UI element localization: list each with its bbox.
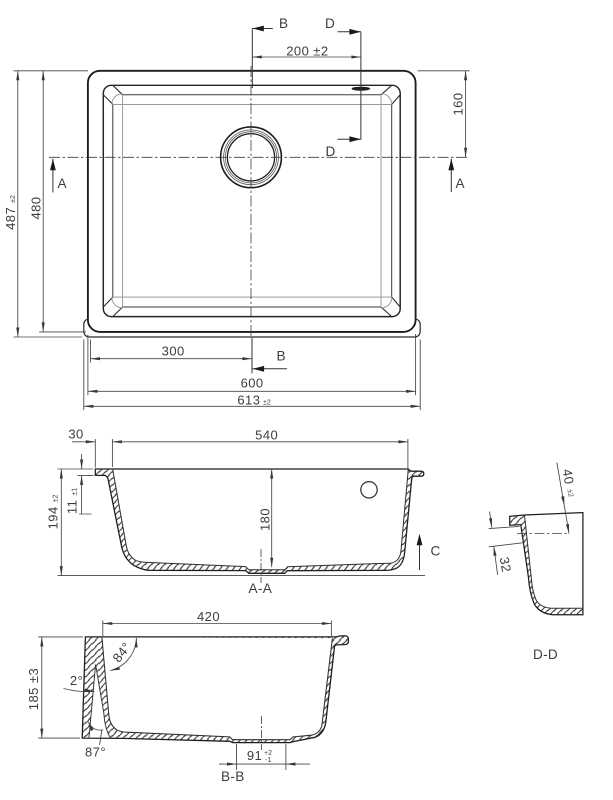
svg-text:A-A: A-A [249, 581, 273, 596]
svg-text:B: B [277, 349, 286, 364]
svg-text:600: 600 [241, 376, 264, 391]
svg-text:±2: ±2 [263, 399, 271, 406]
svg-text:540: 540 [255, 427, 278, 442]
svg-text:200 ±2: 200 ±2 [286, 43, 328, 58]
svg-text:+2: +2 [264, 750, 272, 757]
svg-text:A: A [456, 176, 466, 191]
svg-text:613: 613 [237, 392, 260, 407]
svg-text:480: 480 [29, 196, 44, 219]
svg-text:B: B [279, 16, 288, 31]
svg-text:2°: 2° [70, 673, 83, 688]
svg-text:194 ±2: 194 ±2 [45, 494, 60, 529]
svg-text:160: 160 [451, 92, 466, 115]
svg-text:30: 30 [68, 427, 83, 442]
svg-text:±2: ±2 [566, 489, 574, 498]
svg-text:420: 420 [197, 609, 220, 624]
svg-text:D-D: D-D [533, 647, 558, 662]
svg-text:300: 300 [162, 343, 185, 358]
svg-text:84°: 84° [109, 639, 134, 665]
svg-text:185 ±3: 185 ±3 [26, 668, 41, 710]
svg-text:B-B: B-B [221, 769, 245, 784]
svg-text:40: 40 [560, 468, 577, 486]
svg-text:D: D [325, 16, 335, 31]
svg-text:D: D [326, 144, 336, 159]
svg-text:87°: 87° [85, 745, 106, 760]
svg-text:180: 180 [258, 508, 273, 531]
svg-text:32: 32 [497, 556, 514, 574]
svg-text:11 ±1: 11 ±1 [64, 488, 79, 514]
svg-text:487 ±2: 487 ±2 [3, 195, 18, 230]
svg-text:91: 91 [247, 748, 262, 763]
svg-text:-1: -1 [265, 757, 271, 764]
svg-text:A: A [58, 176, 68, 191]
svg-text:C: C [431, 544, 441, 559]
